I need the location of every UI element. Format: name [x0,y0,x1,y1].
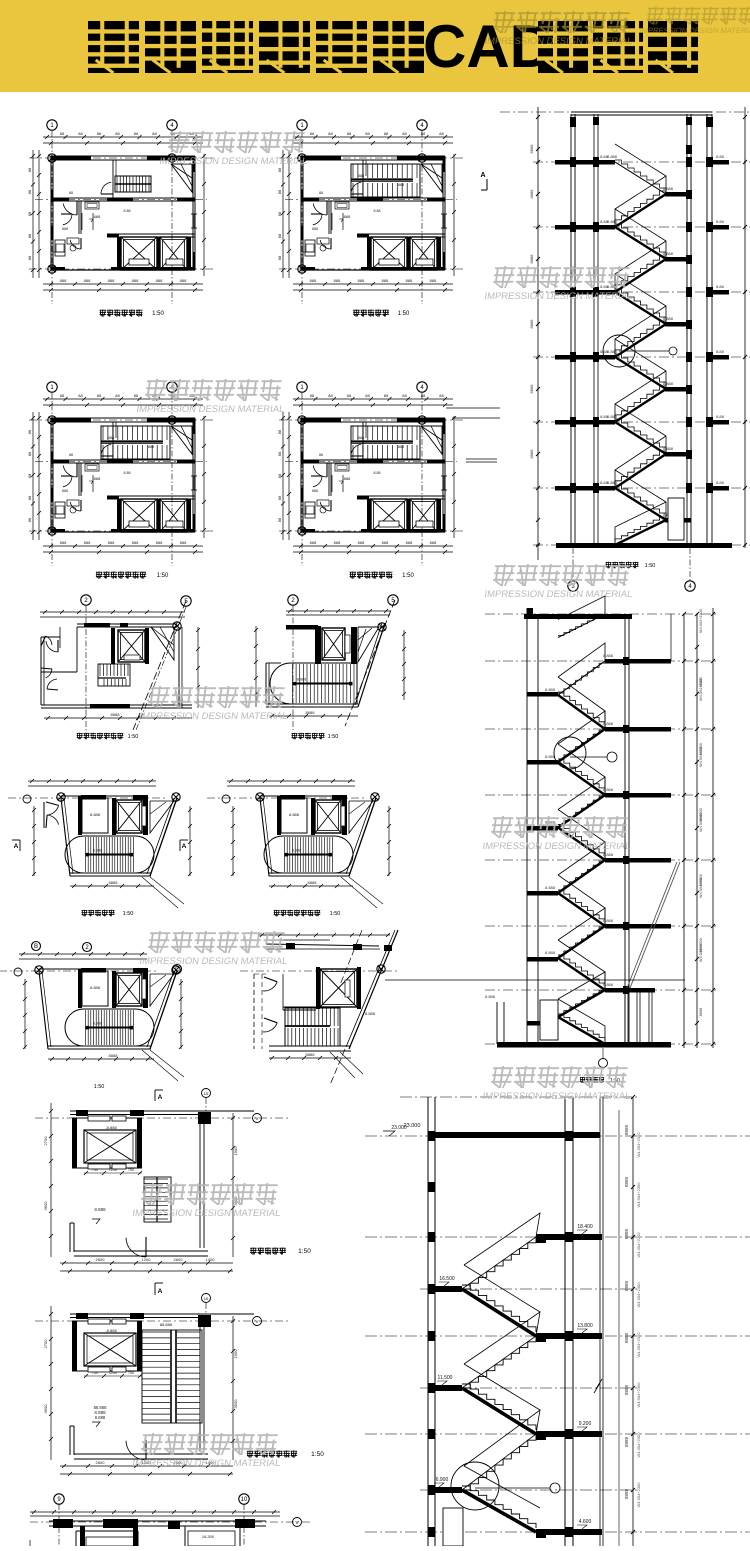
svg-text:88: 88 [115,131,120,136]
svg-text:8.888: 8.888 [545,950,556,955]
svg-text:88: 88 [78,393,83,398]
svg-text:B: B [34,944,38,950]
svg-text:2600: 2600 [174,1257,184,1262]
svg-text:8.88: 8.88 [716,154,725,159]
svg-text:8.888: 8.888 [90,812,101,817]
svg-text:88: 88 [27,211,32,216]
svg-text:88: 88 [277,429,282,434]
svg-text:8.888: 8.888 [663,251,674,256]
svg-text:4.600: 4.600 [579,1519,592,1525]
svg-text:88.888: 88.888 [94,1405,107,1410]
svg-text:888: 888 [382,278,389,283]
svg-text:88: 88 [384,131,389,136]
svg-text:8.88: 8.88 [124,209,131,213]
svg-text:1:50: 1:50 [152,311,164,317]
svg-text:W4.304+2300: W4.304+2300 [636,1382,641,1408]
svg-text:88: 88 [60,131,65,136]
svg-text:888: 888 [382,540,389,545]
svg-text:8.88: 8.88 [716,284,725,289]
svg-text:88: 88 [97,131,102,136]
svg-text:IMPRESSION DESIGN MATERIAL: IMPRESSION DESIGN MATERIAL [139,711,288,722]
svg-text:8.888: 8.888 [603,653,614,658]
svg-text:88: 88 [421,393,426,398]
svg-text:2600: 2600 [96,1460,106,1465]
svg-text:888: 888 [344,214,351,219]
svg-text:10: 10 [241,1497,248,1503]
svg-text:8.888: 8.888 [94,1207,106,1212]
svg-text:8.888: 8.888 [95,1415,106,1420]
svg-text:10: 10 [204,1091,209,1096]
svg-text:IMPRESSION DESIGN MATERIAL: IMPRESSION DESIGN MATERIAL [132,1208,281,1219]
svg-text:8888: 8888 [624,1228,629,1239]
svg-text:W4.504+2300: W4.504+2300 [699,874,703,898]
svg-text:88: 88 [115,393,120,398]
svg-text:88: 88 [365,131,370,136]
svg-text:888: 888 [108,278,115,283]
svg-text:8888: 8888 [529,384,534,394]
svg-text:8888: 8888 [624,1436,629,1447]
svg-text:1:50: 1:50 [328,734,339,740]
svg-text:888: 888 [406,278,413,283]
svg-text:88: 88 [319,191,323,195]
svg-text:888: 888 [312,489,318,493]
svg-text:88: 88 [310,131,315,136]
svg-text:888: 888 [312,227,318,231]
svg-text:1:50: 1:50 [298,1248,311,1255]
svg-text:88: 88 [277,167,282,172]
svg-text:8888: 8888 [529,144,534,154]
svg-text:1900: 1900 [233,1146,238,1156]
svg-text:8888: 8888 [529,319,534,329]
svg-text:W4.504+2300: W4.504+2300 [699,609,703,633]
svg-text:8888: 8888 [624,1124,629,1135]
svg-text:88: 88 [310,393,315,398]
svg-text:1400: 1400 [206,1257,216,1262]
svg-text:8.888: 8.888 [297,678,307,682]
svg-text:888: 888 [398,183,404,187]
svg-text:88: 88 [27,233,32,238]
svg-text:W4.304+2300: W4.304+2300 [636,1132,641,1158]
svg-text:8.888: 8.888 [289,812,300,817]
svg-text:88: 88 [27,167,32,172]
svg-text:88: 88 [27,255,32,260]
svg-text:1200: 1200 [142,1257,152,1262]
svg-text:8888: 8888 [624,1384,629,1395]
svg-text:8.888: 8.888 [545,687,556,692]
svg-text:8.88: 8.88 [124,471,131,475]
svg-text:8888: 8888 [624,1488,629,1499]
svg-text:IMPRESSION DESIGN MATERIAL: IMPRESSION DESIGN MATERIAL [136,404,285,415]
svg-text:8888: 8888 [109,1053,119,1058]
svg-text:8.888: 8.888 [607,349,618,354]
svg-text:W4.304+2300: W4.304+2300 [636,1232,641,1258]
svg-text:C: C [175,967,180,973]
svg-text:8888: 8888 [529,189,534,199]
svg-text:8.888: 8.888 [485,994,496,999]
svg-text:10: 10 [204,1296,209,1301]
svg-text:888: 888 [406,540,413,545]
svg-text:8.88: 8.88 [374,209,381,213]
svg-text:888: 888 [310,278,317,283]
svg-text:1100: 1100 [109,1371,117,1375]
svg-text:888: 888 [180,540,187,545]
svg-text:888: 888 [94,476,101,481]
svg-text:88: 88 [328,131,333,136]
svg-text:888: 888 [156,540,163,545]
svg-text:888: 888 [132,278,139,283]
svg-text:1:50: 1:50 [94,1084,105,1090]
svg-text:88: 88 [152,131,157,136]
svg-text:888: 888 [156,278,163,283]
svg-text:1:50: 1:50 [398,311,410,317]
svg-text:W4.304+2300: W4.304+2300 [636,1332,641,1358]
svg-text:750: 750 [92,1168,98,1172]
svg-text:V: V [255,1319,258,1324]
svg-text:8888: 8888 [111,712,121,717]
svg-text:A: A [182,843,187,850]
svg-text:88: 88 [402,131,407,136]
svg-text:888: 888 [108,540,115,545]
svg-text:8888: 8888 [624,1280,629,1291]
svg-text:9.200: 9.200 [579,1421,592,1427]
svg-text:88: 88 [27,473,32,478]
svg-text:88: 88 [365,393,370,398]
svg-text:88: 88 [347,131,352,136]
svg-text:8888: 8888 [529,254,534,264]
svg-text:88: 88 [27,429,32,434]
svg-text:88: 88 [78,131,83,136]
svg-text:W4.504+2300: W4.504+2300 [699,808,703,832]
svg-text:8.888: 8.888 [607,414,618,419]
svg-text:888: 888 [344,476,351,481]
svg-text:88: 88 [277,451,282,456]
svg-text:8888: 8888 [624,1176,629,1187]
svg-text:1:50: 1:50 [311,1451,324,1458]
svg-text:IMPRESSION DESIGN MATERIAL: IMPRESSION DESIGN MATERIAL [482,1091,631,1102]
svg-text:W4.304+2300: W4.304+2300 [636,1482,641,1508]
svg-text:88: 88 [134,131,139,136]
svg-text:1100: 1100 [109,1168,117,1172]
svg-text:23.000: 23.000 [391,1125,407,1131]
svg-text:888: 888 [148,445,154,449]
svg-text:888: 888 [430,278,437,283]
svg-text:IMPRESSION DESIGN MATERIAL: IMPRESSION DESIGN MATERIAL [484,589,633,600]
svg-text:3600: 3600 [43,1201,48,1211]
svg-text:88: 88 [69,453,73,457]
svg-text:8.888: 8.888 [607,480,618,485]
svg-text:88: 88 [277,495,282,500]
svg-text:8.888: 8.888 [603,721,614,726]
svg-text:88: 88 [134,393,139,398]
svg-text:8.88: 8.88 [716,349,725,354]
svg-text:8888: 8888 [308,880,318,885]
svg-text:88: 88 [319,453,323,457]
svg-text:88: 88 [27,451,32,456]
svg-text:8888: 8888 [529,449,534,459]
svg-text:8888: 8888 [306,1052,316,1057]
svg-text:1:50: 1:50 [330,911,341,917]
svg-text:88: 88 [27,189,32,194]
svg-text:IMPRESSION DESIGN MATERIAL: IMPRESSION DESIGN MATERIAL [482,841,631,852]
svg-text:13.800: 13.800 [577,1323,593,1329]
svg-text:8.888: 8.888 [603,787,614,792]
svg-text:750: 750 [128,1168,134,1172]
svg-text:88: 88 [277,473,282,478]
svg-text:888: 888 [180,278,187,283]
svg-text:IMPRESSION DESIGN MATERIAL: IMPRESSION DESIGN MATERIAL [639,26,750,35]
svg-text:16.500: 16.500 [439,1276,455,1282]
svg-text:8.88: 8.88 [374,471,381,475]
svg-text:2700: 2700 [43,1136,48,1146]
svg-text:8.888: 8.888 [663,381,674,386]
svg-text:A: A [480,172,485,179]
svg-text:2700: 2700 [43,1339,48,1349]
svg-text:8.888: 8.888 [607,154,618,159]
svg-text:888: 888 [310,540,317,545]
svg-text:88: 88 [277,211,282,216]
svg-text:88: 88 [27,517,32,522]
svg-text:88.888: 88.888 [160,1322,173,1327]
svg-text:IMPRESSION DESIGN MATERIAL: IMPRESSION DESIGN MATERIAL [159,156,308,167]
svg-text:W4.304+2300: W4.304+2300 [636,1182,641,1208]
svg-text:8.888: 8.888 [603,918,614,923]
svg-text:IMPRESSION DESIGN MATERIAL: IMPRESSION DESIGN MATERIAL [484,291,633,302]
svg-text:8.88: 8.88 [716,414,725,419]
svg-text:88: 88 [277,233,282,238]
svg-text:8888: 8888 [624,1332,629,1343]
svg-text:88: 88 [277,255,282,260]
svg-text:888: 888 [358,278,365,283]
svg-text:W4.304+2300: W4.304+2300 [636,1432,641,1458]
svg-text:88: 88 [97,393,102,398]
svg-text:16.300: 16.300 [202,1534,215,1539]
svg-text:IMPRESSION DESIGN MATERIAL: IMPRESSION DESIGN MATERIAL [484,36,633,47]
svg-text:-8.888: -8.888 [105,1125,117,1130]
svg-text:8.888: 8.888 [607,219,618,224]
svg-text:8.888: 8.888 [292,849,302,853]
svg-text:88: 88 [384,393,389,398]
svg-text:A: A [14,843,19,850]
svg-text:888: 888 [60,540,67,545]
svg-text:888: 888 [398,445,404,449]
svg-text:88: 88 [402,393,407,398]
svg-text:8.888: 8.888 [603,982,614,987]
svg-text:8.888: 8.888 [663,186,674,191]
svg-text:8.88: 8.88 [716,219,725,224]
svg-text:750: 750 [92,1371,98,1375]
svg-text:V: V [255,1116,258,1121]
svg-text:8.888: 8.888 [365,1011,376,1016]
svg-text:88: 88 [328,393,333,398]
svg-text:888: 888 [84,278,91,283]
svg-text:888: 888 [334,540,341,545]
svg-text:888: 888 [62,227,68,231]
svg-text:88: 88 [439,131,444,136]
svg-text:8888: 8888 [306,710,316,715]
svg-text:88: 88 [60,393,65,398]
svg-text:88: 88 [27,495,32,500]
svg-text:88: 88 [277,189,282,194]
svg-text:18.400: 18.400 [577,1224,593,1230]
svg-text:8.888: 8.888 [545,885,556,890]
svg-text:8.888: 8.888 [93,849,103,853]
svg-text:888: 888 [132,540,139,545]
svg-text:88: 88 [69,191,73,195]
svg-text:8888: 8888 [109,880,119,885]
svg-text:888: 888 [84,540,91,545]
svg-text:A: A [158,1094,163,1101]
svg-text:V: V [295,1520,298,1525]
svg-text:3500: 3500 [233,1399,238,1409]
svg-text:1:50: 1:50 [157,573,169,579]
svg-text:IMPRESSION DESIGN MATERIAL: IMPRESSION DESIGN MATERIAL [132,1458,281,1469]
svg-text:W4.504+2300: W4.504+2300 [699,743,703,767]
svg-text:IMPRESSION DESIGN MATERIAL: IMPRESSION DESIGN MATERIAL [139,956,288,967]
svg-text:1:50: 1:50 [128,734,139,740]
svg-text:8.88: 8.88 [716,480,725,485]
svg-text:8.888: 8.888 [90,985,101,990]
svg-text:W4.504+2300: W4.504+2300 [699,938,703,962]
svg-text:88: 88 [421,131,426,136]
svg-text:1:50: 1:50 [402,573,414,579]
svg-text:88: 88 [347,393,352,398]
svg-text:2600: 2600 [96,1257,106,1262]
svg-text:888: 888 [430,540,437,545]
svg-text:8888: 8888 [699,1008,703,1016]
svg-text:8.888: 8.888 [663,446,674,451]
svg-text:8.888: 8.888 [603,852,614,857]
svg-text:88: 88 [439,393,444,398]
svg-text:888: 888 [62,489,68,493]
svg-text:1:50: 1:50 [123,911,134,917]
svg-text:A: A [158,1288,163,1295]
svg-text:1:50: 1:50 [645,563,656,569]
svg-text:8.888: 8.888 [663,316,674,321]
svg-text:750: 750 [128,1371,134,1375]
svg-text:3600: 3600 [43,1404,48,1414]
svg-text:8.888: 8.888 [93,1022,103,1026]
svg-text:888: 888 [94,214,101,219]
svg-text:888: 888 [60,278,67,283]
svg-text:888: 888 [358,540,365,545]
svg-text:11.500: 11.500 [438,1375,453,1381]
svg-text:88: 88 [277,517,282,522]
svg-text:1900: 1900 [233,1349,238,1359]
svg-text:-8.888: -8.888 [105,1328,117,1333]
svg-text:W4.304+2300: W4.304+2300 [636,1282,641,1308]
svg-text:888: 888 [334,278,341,283]
svg-text:W4.504+2300: W4.504+2300 [699,677,703,701]
svg-text:6.900: 6.900 [436,1477,449,1483]
